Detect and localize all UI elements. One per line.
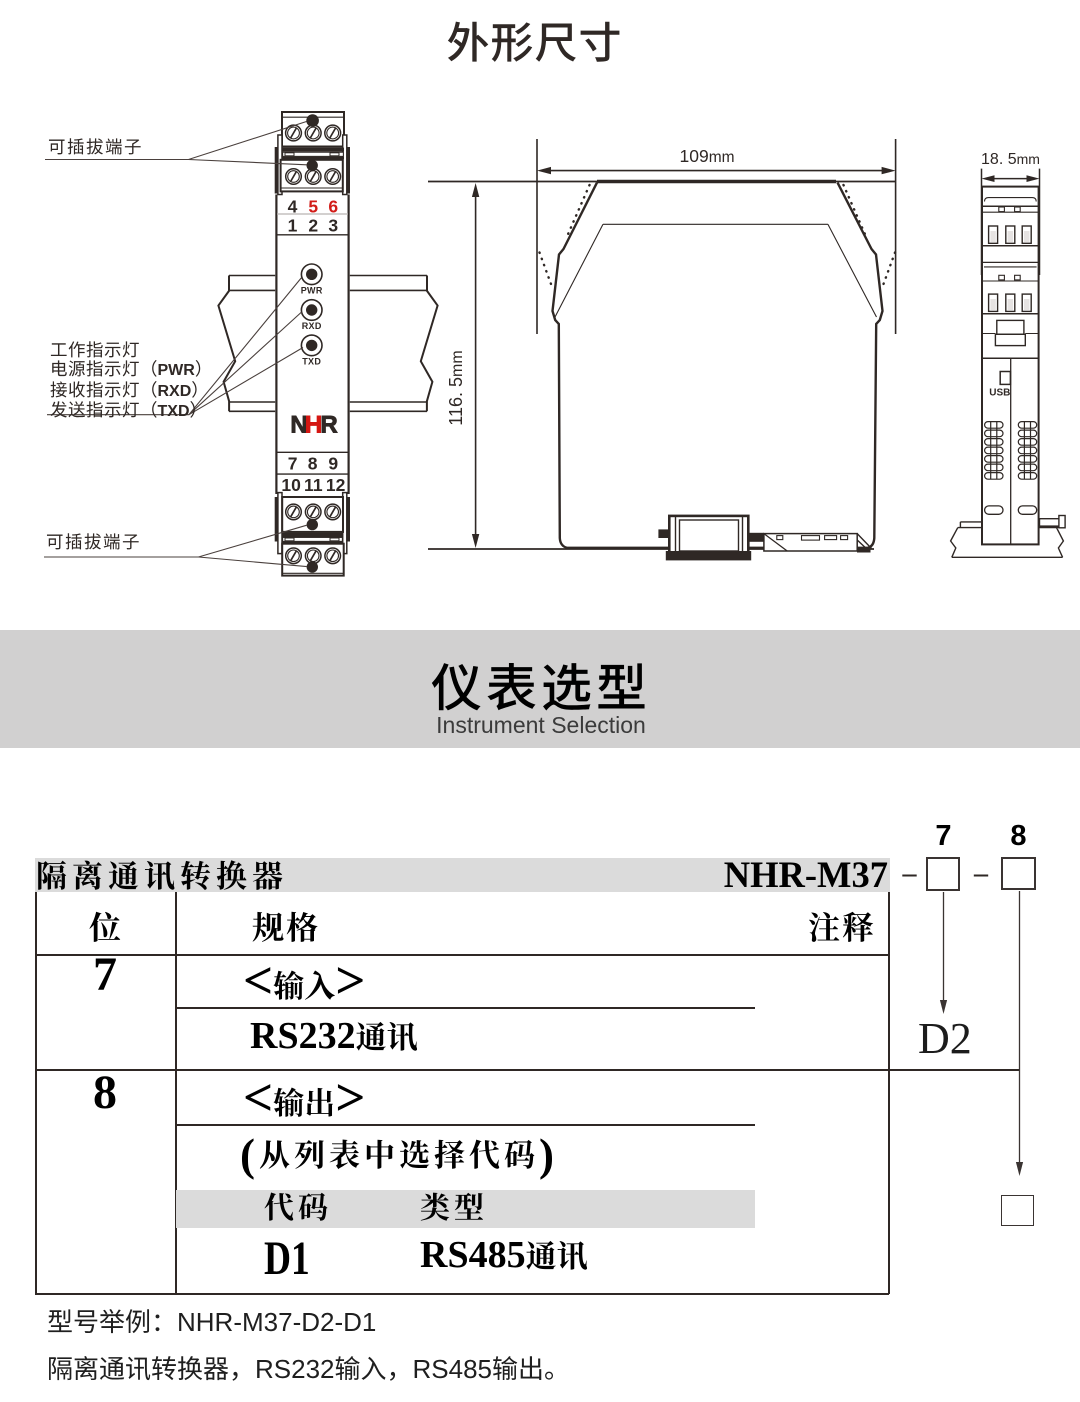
svg-text:RXD: RXD xyxy=(302,321,322,331)
svg-text:7: 7 xyxy=(288,454,298,474)
svg-text:12: 12 xyxy=(326,475,346,495)
svg-text:5: 5 xyxy=(308,197,318,217)
svg-text:PWR: PWR xyxy=(301,286,323,296)
svg-text:R: R xyxy=(320,412,337,439)
svg-text:10: 10 xyxy=(281,475,301,495)
svg-text:2: 2 xyxy=(308,216,318,236)
svg-text:11: 11 xyxy=(304,475,323,495)
svg-text:3: 3 xyxy=(328,216,338,236)
svg-text:USB: USB xyxy=(989,388,1010,399)
svg-text:18. 5mm: 18. 5mm xyxy=(981,151,1040,168)
svg-text:9: 9 xyxy=(328,454,338,474)
svg-text:4: 4 xyxy=(288,197,298,217)
svg-text:TXD: TXD xyxy=(302,357,321,367)
svg-text:116. 5mm: 116. 5mm xyxy=(446,350,466,425)
svg-text:6: 6 xyxy=(328,197,338,217)
svg-text:1: 1 xyxy=(288,216,298,236)
svg-text:109mm: 109mm xyxy=(679,146,734,166)
svg-text:8: 8 xyxy=(308,454,318,474)
